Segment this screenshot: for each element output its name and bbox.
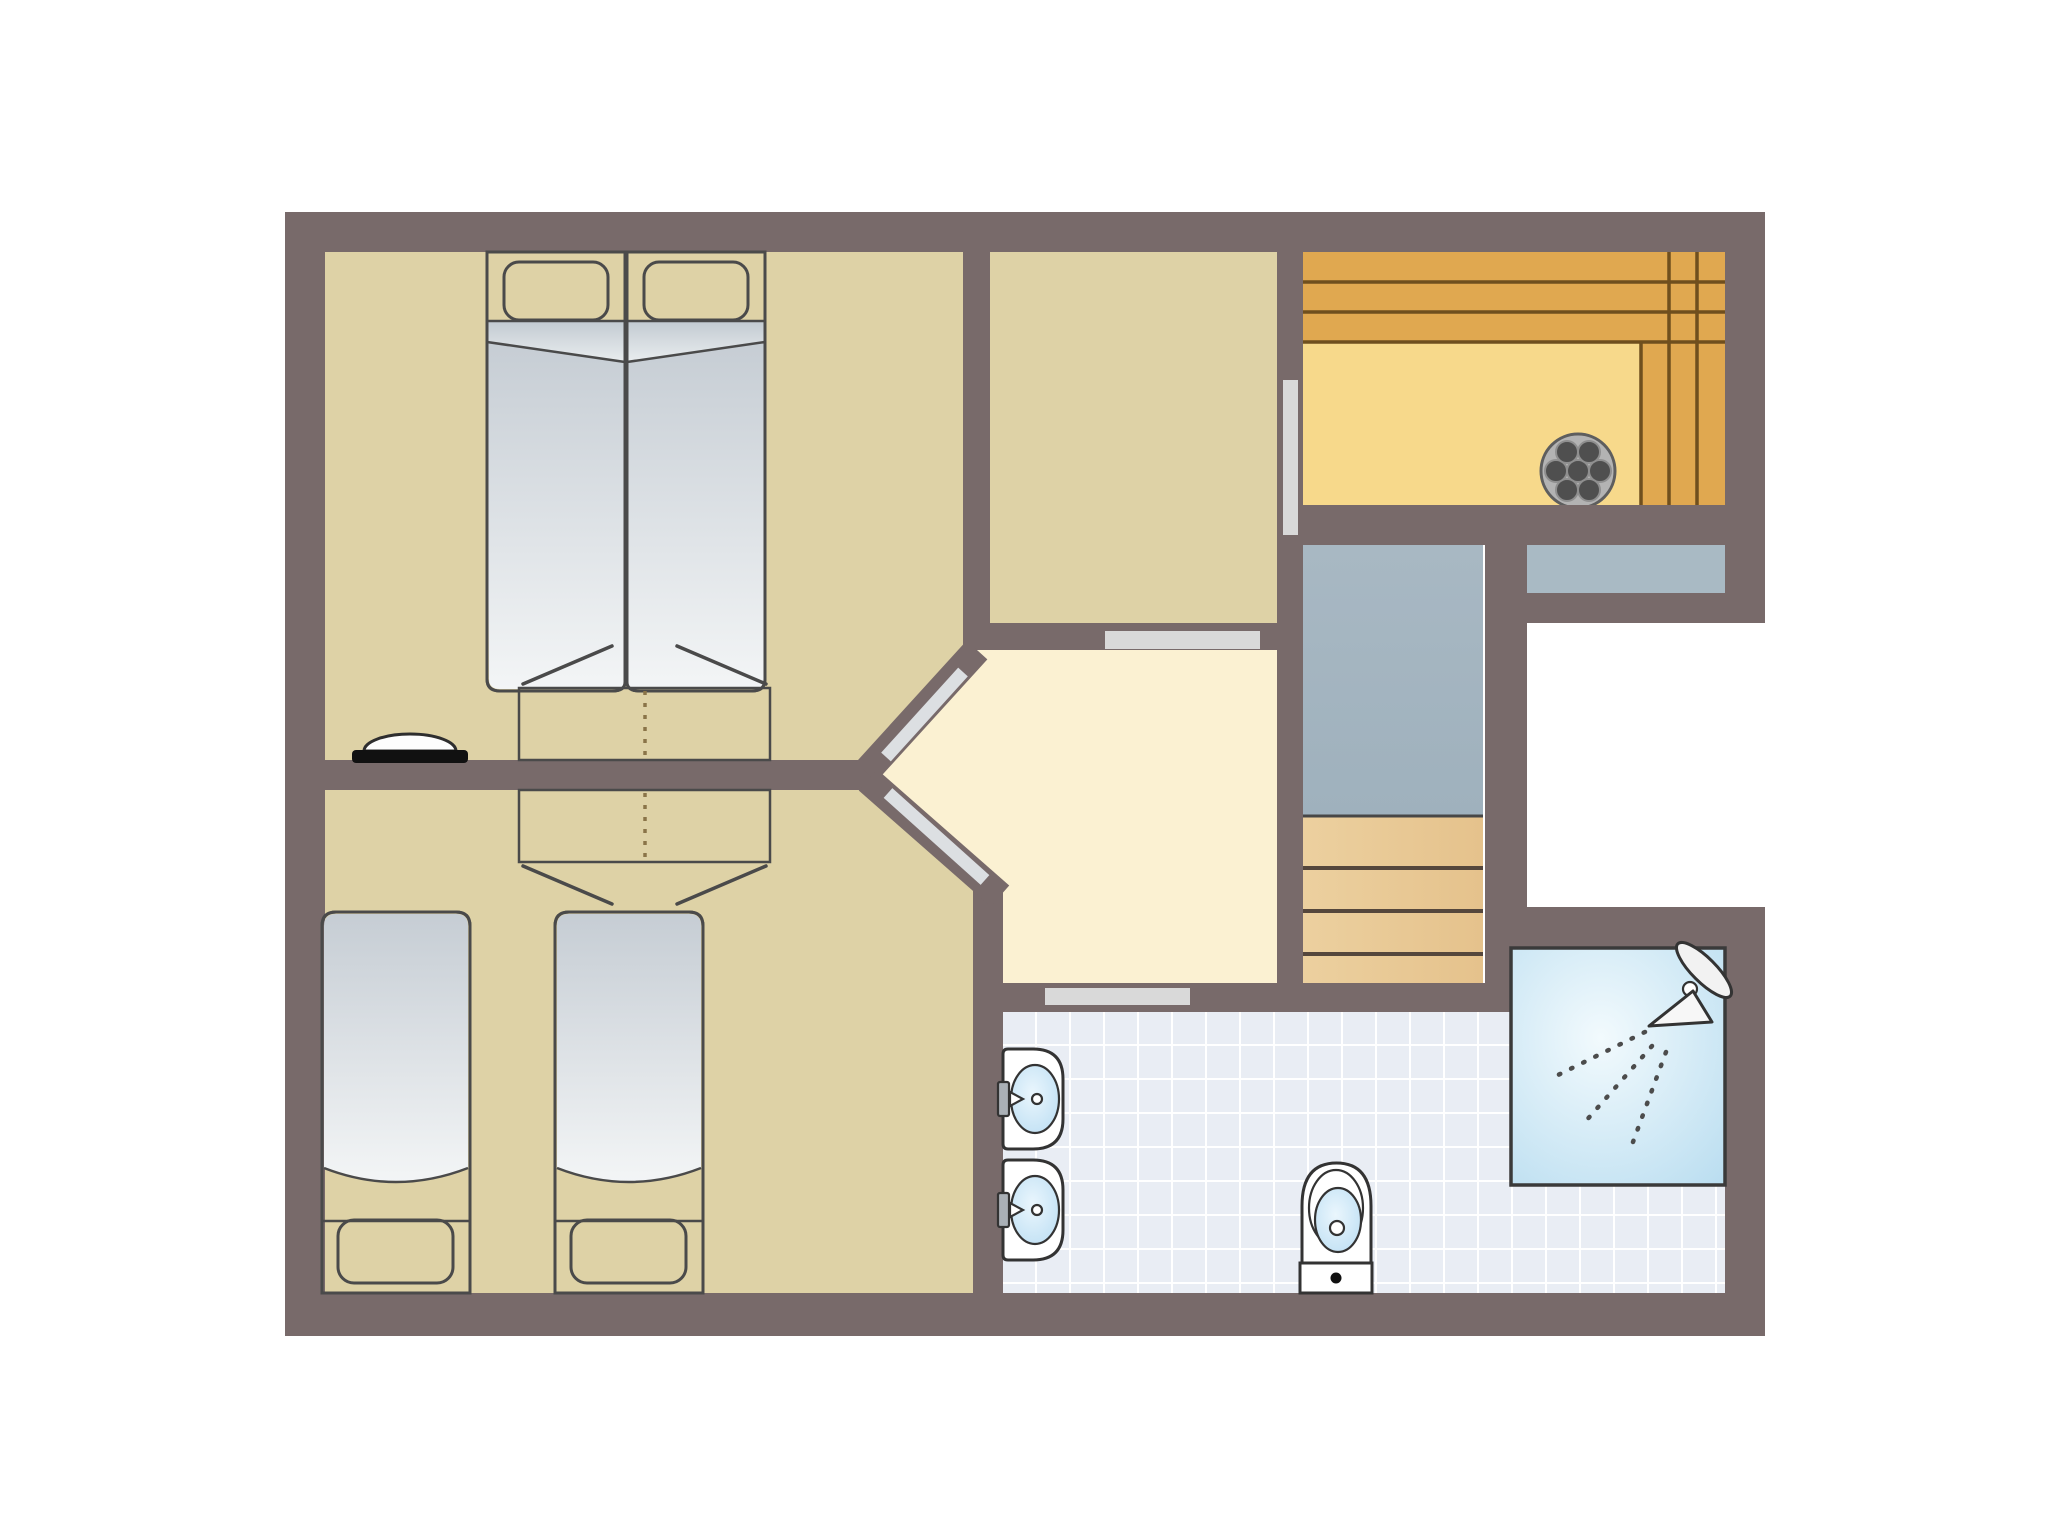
shower-area <box>1511 935 1739 1185</box>
door-sauna <box>1283 380 1298 535</box>
room-top-middle-floor <box>990 252 1277 623</box>
stove-stone <box>1556 441 1578 463</box>
wall-stairs-void <box>1485 545 1527 1012</box>
outer-wall-bottom <box>285 1293 1765 1336</box>
wall-between-bedrooms <box>325 760 880 790</box>
wall-below-railing <box>1527 593 1765 623</box>
wall-sauna-bottom <box>1277 505 1765 545</box>
washbasin-base <box>352 750 468 763</box>
outer-wall-top <box>285 212 1765 252</box>
stair-railing-ledge <box>1527 545 1725 593</box>
door-middle-room <box>1105 631 1260 649</box>
bathroom-sink-2 <box>998 1160 1063 1260</box>
bed-blanket <box>487 342 625 689</box>
staircase <box>1303 545 1483 985</box>
bed-blanket <box>627 342 765 689</box>
toilet-flush-button <box>1331 1273 1342 1284</box>
wall-middleroom-sauna <box>1277 252 1303 1012</box>
sink-tap <box>998 1193 1009 1227</box>
stair-steps <box>1303 815 1483 985</box>
floor-plan-image <box>0 0 2048 1536</box>
stove-stone <box>1578 441 1600 463</box>
toilet-drain <box>1330 1221 1344 1235</box>
sauna-room <box>1303 252 1725 508</box>
bed-blanket <box>557 914 701 1182</box>
stove-stone <box>1578 479 1600 501</box>
outer-wall-right-lower <box>1725 951 1765 1336</box>
sink-drain <box>1032 1094 1042 1104</box>
wall-above-shower <box>1527 907 1765 951</box>
sink-drain <box>1032 1205 1042 1215</box>
wall-bedroom1-right <box>963 252 990 650</box>
door-bathroom <box>1045 988 1190 1005</box>
toilet <box>1300 1163 1372 1293</box>
outer-wall-left <box>285 212 325 1336</box>
stair-landing <box>1303 545 1483 815</box>
sauna-stove-icon <box>1541 434 1615 508</box>
outer-wall-right-upper <box>1725 212 1765 623</box>
floor-plan-page <box>0 0 2048 1536</box>
bathroom-sink-1 <box>998 1049 1063 1149</box>
bed-blanket <box>324 914 468 1182</box>
sink-tap <box>998 1082 1009 1116</box>
